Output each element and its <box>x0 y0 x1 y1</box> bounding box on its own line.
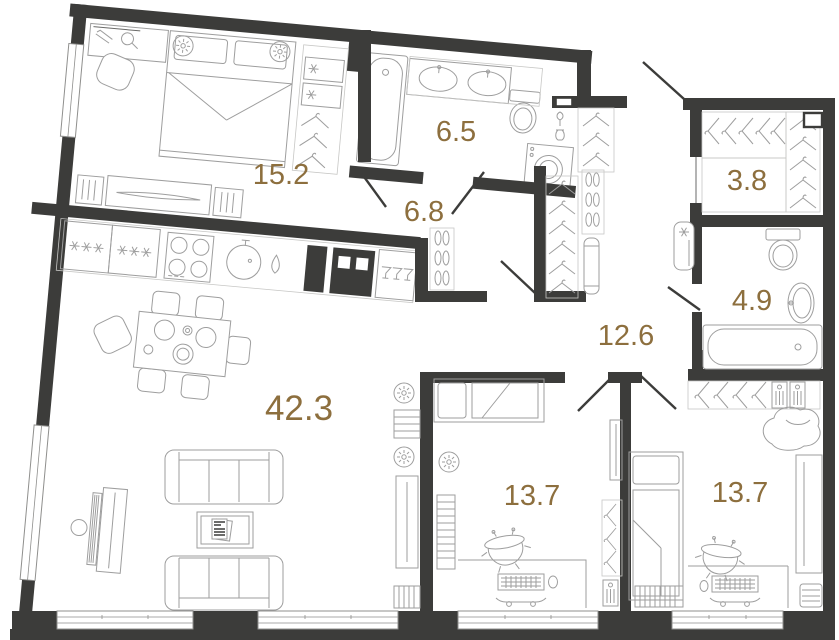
shelf-column <box>394 383 420 608</box>
window-bottom-3 <box>458 611 598 629</box>
double-washbasin <box>407 58 512 103</box>
hanger-strip <box>602 500 622 576</box>
wall-bedroom-kitchen <box>31 202 420 249</box>
wall-strip-horizontal-right <box>537 291 586 302</box>
label-bathroom-main: 6.5 <box>436 116 476 148</box>
door-bathroom-leaf <box>452 172 484 214</box>
wall-bedroom-bath-divider <box>358 30 371 162</box>
wall-49-bottom <box>688 369 835 381</box>
brush-icon <box>95 30 113 43</box>
wardrobe-room <box>702 112 822 212</box>
wall-kid1-top <box>420 372 565 383</box>
bathtub <box>703 325 822 369</box>
dining-group <box>85 285 255 404</box>
bookshelf <box>437 495 455 569</box>
decor-drop-icon <box>271 255 280 274</box>
label-children-room-1: 13.7 <box>504 480 560 512</box>
wall-right <box>823 98 835 638</box>
toilet <box>766 229 800 270</box>
hanger-rail <box>688 381 820 409</box>
wall-tub-stub <box>694 350 703 370</box>
wall-bath-bottom-left <box>349 165 424 184</box>
mouse <box>549 576 558 588</box>
bean-bag <box>763 407 820 450</box>
mouse <box>700 581 708 592</box>
label-children-room-2: 13.7 <box>712 477 768 509</box>
kitchen-duct-a <box>303 245 327 293</box>
kitchen-duct-b <box>329 247 375 297</box>
single-bed <box>434 379 544 422</box>
wardrobe-cabinet <box>796 455 822 573</box>
bedroom-furniture <box>74 23 348 226</box>
sofa-top <box>165 450 283 504</box>
bottom-wall <box>10 611 835 640</box>
sofa-bottom <box>165 556 283 610</box>
door-49-leaf <box>668 287 700 310</box>
chair <box>181 374 210 400</box>
bench <box>584 238 599 294</box>
vanity-table <box>88 23 169 62</box>
wall-kitchen-end <box>415 238 428 302</box>
duct-box <box>804 113 822 127</box>
wall-kid1-left <box>420 372 433 616</box>
label-bedroom: 15.2 <box>253 159 309 191</box>
window-bottom-1 <box>57 611 193 629</box>
wardrobe-box <box>603 580 618 606</box>
desk <box>458 560 586 608</box>
window-bottom-4 <box>672 611 783 629</box>
wall-left-b <box>36 134 75 426</box>
floor-plan-svg: 15.2 6.5 6.8 3.8 4.9 12.6 42.3 13.7 13.7 <box>0 0 839 640</box>
door-kid1-leaf <box>578 380 609 411</box>
label-hall-small: 6.8 <box>404 196 444 228</box>
armchair <box>91 313 134 356</box>
desk <box>688 566 788 608</box>
window-bottom-2 <box>258 611 398 629</box>
radiator <box>800 584 822 607</box>
kitchen-sink <box>225 239 262 281</box>
window-left-1 <box>60 43 83 137</box>
label-bathroom-second: 4.9 <box>732 285 772 317</box>
wall-top-right <box>683 98 835 110</box>
wall-strip-vertical <box>534 166 546 302</box>
hand-mirror-handle <box>132 43 138 49</box>
entrance-door-leaf <box>643 62 684 99</box>
tv-stand-group <box>67 485 127 573</box>
label-wardrobe-room: 3.8 <box>727 165 767 197</box>
wall-top <box>69 3 592 63</box>
wall-38-left-a <box>690 110 702 157</box>
shoe-rack-left <box>430 228 454 290</box>
glass-cabinet <box>375 249 417 300</box>
side-table <box>70 519 87 536</box>
wardrobe-top <box>578 108 614 172</box>
floor-plan: 15.2 6.5 6.8 3.8 4.9 12.6 42.3 13.7 13.7 <box>0 0 839 640</box>
bottle-icons <box>556 112 565 140</box>
wall-38-49-divider <box>690 215 835 227</box>
wall-kid-stub <box>608 372 642 383</box>
water-heater <box>674 222 694 270</box>
single-bed <box>629 452 683 600</box>
toy <box>477 525 534 575</box>
window-left-2 <box>20 425 49 581</box>
toilet <box>507 90 541 135</box>
hob <box>164 232 214 282</box>
coffee-table <box>197 512 253 548</box>
wall-entry-left <box>552 96 627 108</box>
label-living-kitchen: 42.3 <box>265 389 333 428</box>
shoe-rack-right <box>582 170 604 234</box>
wall-38-left-b <box>690 203 702 217</box>
bedroom-wardrobe <box>292 45 348 175</box>
duct-box <box>556 98 572 106</box>
washbasin <box>788 283 814 323</box>
door-kid2-leaf <box>641 376 676 409</box>
chair <box>137 368 166 394</box>
living-room-furniture <box>67 285 420 610</box>
sconce-icon <box>439 452 459 472</box>
label-hallway: 12.6 <box>598 320 654 352</box>
door-living-leaf <box>501 261 535 293</box>
